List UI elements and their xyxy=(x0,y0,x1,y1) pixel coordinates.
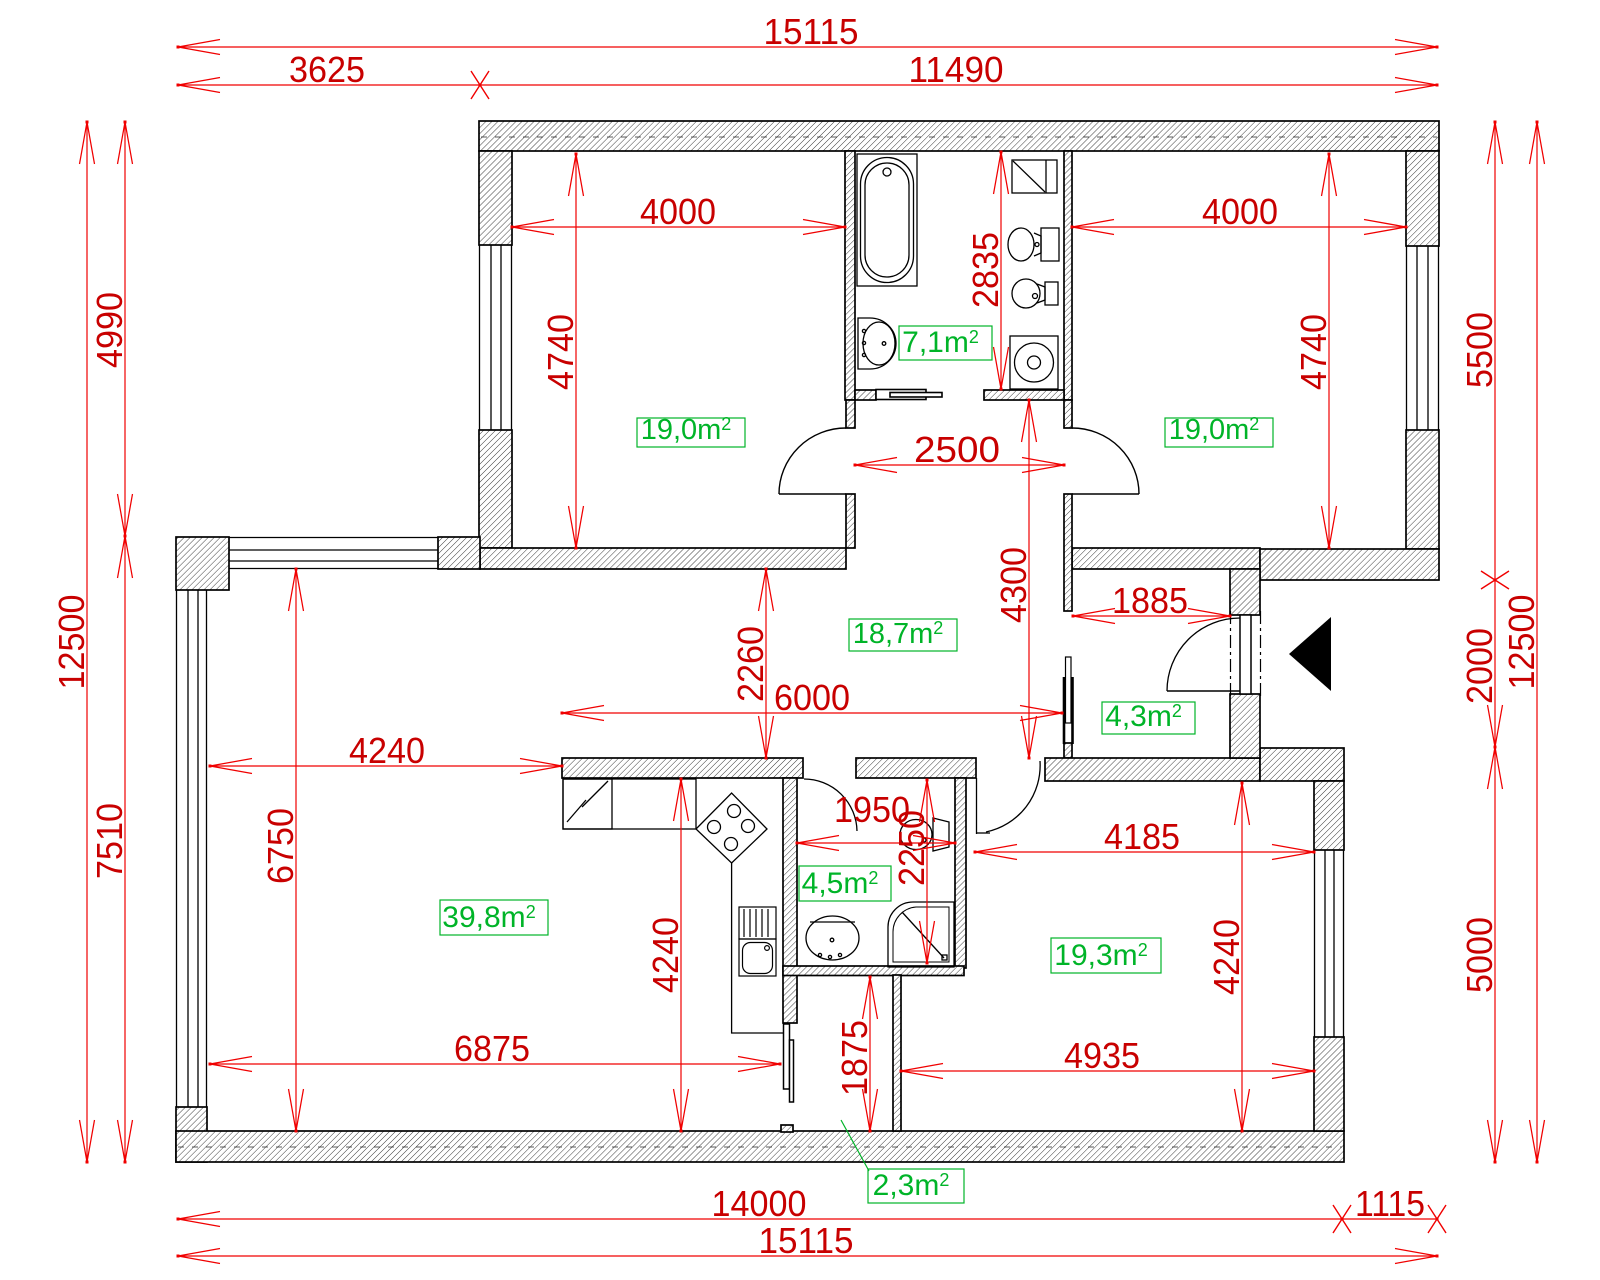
svg-text:4240: 4240 xyxy=(349,730,425,771)
svg-text:6750: 6750 xyxy=(260,808,301,884)
svg-text:5000: 5000 xyxy=(1459,917,1500,993)
svg-text:4990: 4990 xyxy=(89,292,130,368)
svg-text:2500: 2500 xyxy=(914,429,1000,470)
svg-text:2250: 2250 xyxy=(891,810,932,886)
svg-text:12500: 12500 xyxy=(1501,595,1542,690)
svg-text:4185: 4185 xyxy=(1104,816,1180,857)
svg-text:19,0m2: 19,0m2 xyxy=(1169,414,1260,446)
svg-text:7,1m2: 7,1m2 xyxy=(902,326,979,359)
svg-text:2,3m2: 2,3m2 xyxy=(873,1169,950,1202)
svg-text:4935: 4935 xyxy=(1064,1035,1140,1076)
svg-text:1875: 1875 xyxy=(834,1020,875,1096)
svg-text:7510: 7510 xyxy=(89,803,130,879)
svg-text:4,3m2: 4,3m2 xyxy=(1105,700,1182,733)
svg-text:11490: 11490 xyxy=(909,49,1004,90)
svg-text:19,0m2: 19,0m2 xyxy=(641,414,732,446)
svg-text:2000: 2000 xyxy=(1459,628,1500,704)
svg-text:4240: 4240 xyxy=(1206,919,1247,995)
svg-text:1885: 1885 xyxy=(1112,580,1188,621)
svg-text:4740: 4740 xyxy=(540,314,581,390)
svg-text:4300: 4300 xyxy=(993,547,1034,623)
svg-text:2835: 2835 xyxy=(965,232,1006,308)
svg-text:12500: 12500 xyxy=(51,595,92,690)
svg-text:4000: 4000 xyxy=(640,191,716,232)
svg-text:15115: 15115 xyxy=(764,11,859,52)
svg-text:4,5m2: 4,5m2 xyxy=(802,867,879,900)
svg-text:4740: 4740 xyxy=(1293,314,1334,390)
svg-text:39,8m2: 39,8m2 xyxy=(442,901,535,934)
svg-text:18,7m2: 18,7m2 xyxy=(853,618,944,650)
svg-text:3625: 3625 xyxy=(289,49,365,90)
svg-text:4240: 4240 xyxy=(645,917,686,993)
svg-text:15115: 15115 xyxy=(759,1220,854,1261)
svg-text:6000: 6000 xyxy=(774,677,850,718)
svg-text:6875: 6875 xyxy=(454,1028,530,1069)
svg-text:2260: 2260 xyxy=(730,626,771,702)
svg-text:14000: 14000 xyxy=(712,1183,807,1224)
svg-text:1115: 1115 xyxy=(1355,1183,1425,1224)
svg-text:19,3m2: 19,3m2 xyxy=(1054,939,1147,972)
svg-text:4000: 4000 xyxy=(1202,191,1278,232)
svg-text:5500: 5500 xyxy=(1459,312,1500,388)
